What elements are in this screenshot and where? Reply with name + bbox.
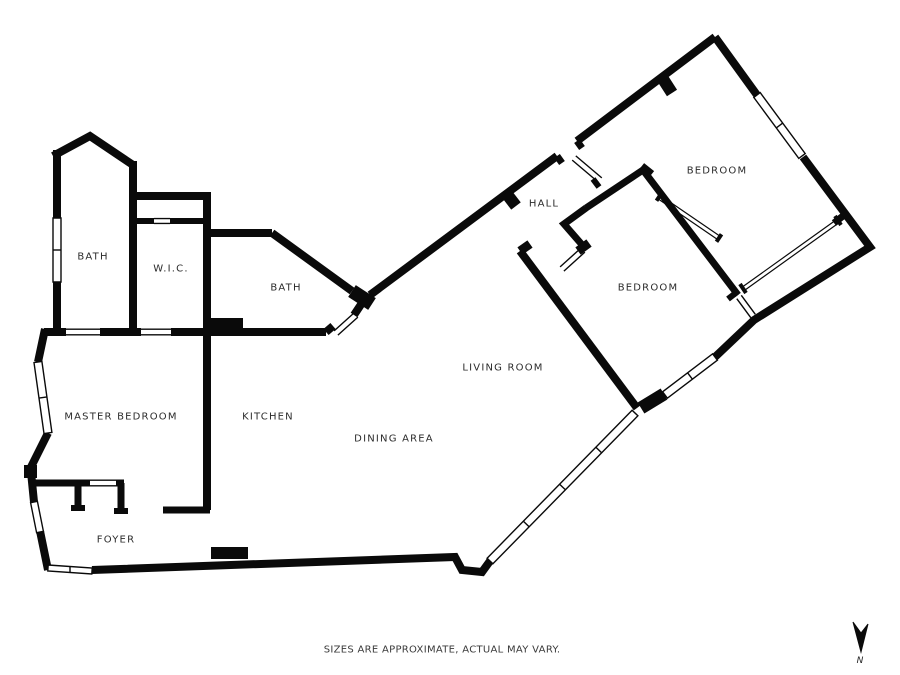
room-label-bath-1: BATH [77, 252, 108, 263]
floorplan-canvas: BATH W.I.C. BATH HALL BEDROOM BEDROOM LI… [0, 0, 900, 675]
room-label-master-bedroom: MASTER BEDROOM [64, 412, 177, 423]
wall-tabs [24, 79, 843, 559]
room-label-hall: HALL [529, 199, 559, 210]
room-label-wic: W.I.C. [153, 264, 188, 275]
north-arrow-icon [853, 622, 868, 652]
room-label-dining-area: DINING AREA [354, 434, 434, 445]
north-label: N [857, 656, 864, 666]
room-label-foyer: FOYER [97, 535, 135, 546]
room-label-kitchen: KITCHEN [242, 412, 294, 423]
room-label-bedroom-2: BEDROOM [618, 283, 679, 294]
exterior-walls [29, 37, 870, 572]
room-label-living-room: LIVING ROOM [462, 363, 543, 374]
room-label-bedroom-1: BEDROOM [687, 166, 748, 177]
disclaimer-text: SIZES ARE APPROXIMATE, ACTUAL MAY VARY. [324, 645, 561, 656]
floorplan-drawing [0, 0, 900, 675]
room-label-bath-2: BATH [270, 283, 301, 294]
